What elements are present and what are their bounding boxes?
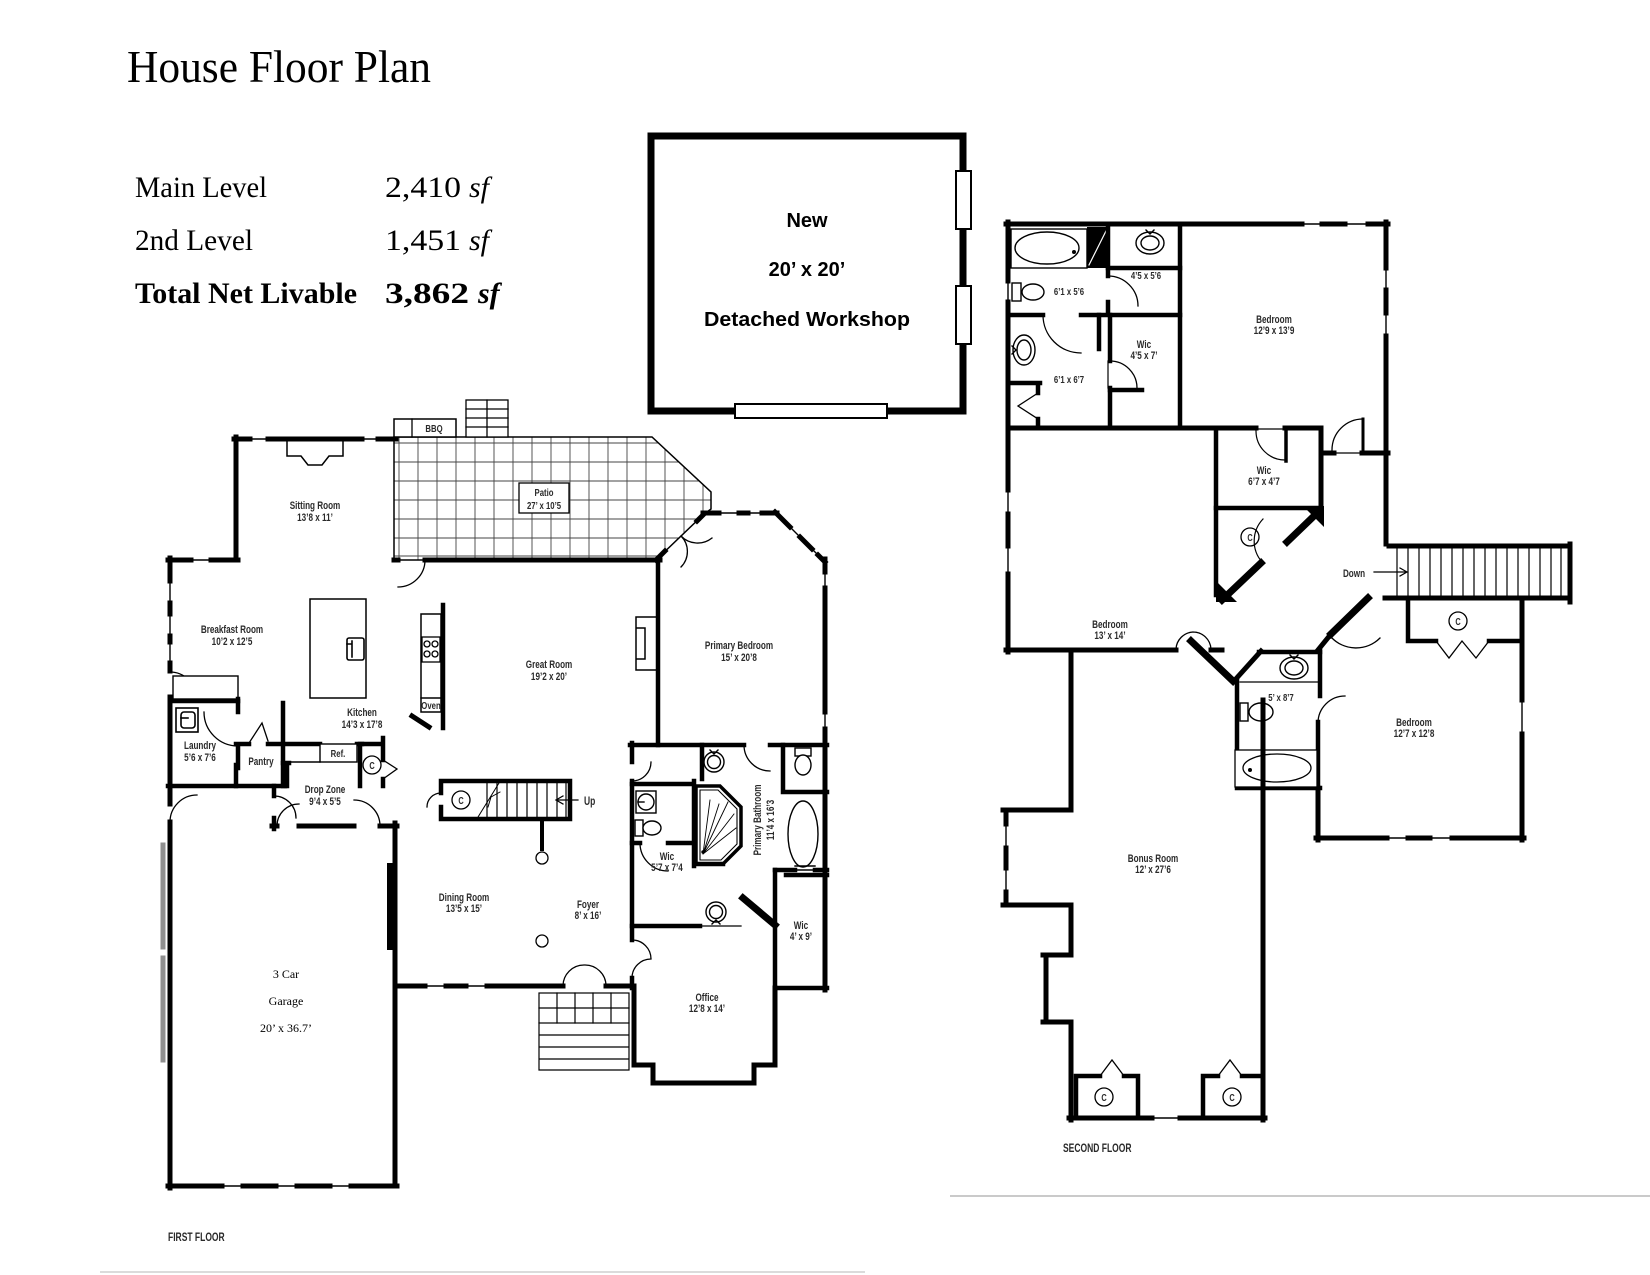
svg-text:15’ x 20’8: 15’ x 20’8 bbox=[721, 652, 757, 665]
svg-text:Oven: Oven bbox=[421, 700, 441, 711]
svg-text:Laundry: Laundry bbox=[184, 740, 217, 753]
svg-text:2nd Level: 2nd Level bbox=[135, 224, 253, 257]
svg-text:4’ x 9’: 4’ x 9’ bbox=[790, 931, 812, 944]
svg-text:Garage: Garage bbox=[269, 994, 304, 1008]
svg-text:5’ x 8’7: 5’ x 8’7 bbox=[1268, 692, 1293, 703]
svg-text:Ref.: Ref. bbox=[331, 748, 346, 759]
svg-text:C: C bbox=[1229, 1092, 1235, 1103]
svg-text:BBQ: BBQ bbox=[425, 423, 442, 434]
svg-text:Pantry: Pantry bbox=[248, 756, 274, 769]
svg-text:Detached Workshop: Detached Workshop bbox=[704, 309, 910, 331]
svg-text:12’9 x 13’9: 12’9 x 13’9 bbox=[1254, 325, 1295, 338]
svg-text:11’4 x 16’3: 11’4 x 16’3 bbox=[765, 799, 778, 840]
svg-text:20’ x 36.7’: 20’ x 36.7’ bbox=[260, 1021, 312, 1035]
svg-text:Primary Bathroom: Primary Bathroom bbox=[752, 785, 765, 856]
svg-text:FIRST FLOOR: FIRST FLOOR bbox=[168, 1232, 225, 1245]
svg-text:SECOND FLOOR: SECOND FLOOR bbox=[1063, 1143, 1132, 1156]
svg-text:3,862: 3,862 bbox=[385, 277, 469, 310]
svg-text:5’7 x 7’4: 5’7 x 7’4 bbox=[651, 862, 683, 875]
svg-text:12’7 x 12’8: 12’7 x 12’8 bbox=[1394, 728, 1435, 741]
svg-text:Down: Down bbox=[1343, 568, 1365, 581]
svg-text:2,410: 2,410 bbox=[385, 171, 461, 204]
svg-text:C: C bbox=[1247, 532, 1253, 543]
svg-text:9’4 x 5’5: 9’4 x 5’5 bbox=[309, 796, 341, 809]
svg-text:sf: sf bbox=[477, 277, 503, 310]
svg-text:Up: Up bbox=[584, 796, 595, 809]
svg-text:Breakfast Room: Breakfast Room bbox=[201, 624, 263, 637]
svg-text:12’8 x 14’: 12’8 x 14’ bbox=[689, 1003, 725, 1016]
svg-text:Primary Bedroom: Primary Bedroom bbox=[705, 640, 773, 653]
svg-text:14’3 x 17’8: 14’3 x 17’8 bbox=[342, 719, 383, 732]
svg-text:C: C bbox=[1455, 616, 1461, 627]
svg-text:19’2 x 20’: 19’2 x 20’ bbox=[531, 671, 567, 684]
svg-text:3 Car: 3 Car bbox=[273, 967, 299, 981]
svg-text:1,451: 1,451 bbox=[385, 224, 461, 257]
svg-text:4’5 x 7’: 4’5 x 7’ bbox=[1130, 350, 1157, 363]
svg-text:Total Net Livable: Total Net Livable bbox=[135, 277, 357, 310]
svg-text:8’ x 16’: 8’ x 16’ bbox=[575, 910, 602, 923]
svg-text:C: C bbox=[369, 760, 375, 771]
svg-text:Sitting Room: Sitting Room bbox=[290, 500, 341, 513]
svg-text:13’ x 14’: 13’ x 14’ bbox=[1094, 630, 1125, 643]
svg-text:20’ x 20’: 20’ x 20’ bbox=[769, 259, 846, 281]
svg-text:New: New bbox=[786, 210, 828, 232]
svg-text:Kitchen: Kitchen bbox=[347, 707, 377, 720]
svg-text:Drop Zone: Drop Zone bbox=[305, 784, 346, 797]
svg-text:Patio: Patio bbox=[535, 487, 554, 498]
svg-text:Great Room: Great Room bbox=[526, 659, 572, 672]
svg-text:6’1 x 5’6: 6’1 x 5’6 bbox=[1054, 286, 1084, 297]
svg-text:6’1 x 6’7: 6’1 x 6’7 bbox=[1054, 374, 1084, 385]
svg-text:6’7 x 4’7: 6’7 x 4’7 bbox=[1248, 476, 1280, 489]
svg-text:13’5 x 15’: 13’5 x 15’ bbox=[446, 903, 482, 916]
svg-text:House Floor Plan: House Floor Plan bbox=[127, 41, 431, 92]
svg-text:Main Level: Main Level bbox=[135, 171, 267, 204]
svg-text:5’6 x 7’6: 5’6 x 7’6 bbox=[184, 752, 216, 765]
svg-text:C: C bbox=[1101, 1092, 1107, 1103]
svg-text:C: C bbox=[458, 795, 464, 806]
svg-text:13’8 x 11’: 13’8 x 11’ bbox=[297, 512, 333, 525]
svg-text:4’5 x 5’6: 4’5 x 5’6 bbox=[1131, 270, 1161, 281]
svg-text:27’ x 10’5: 27’ x 10’5 bbox=[527, 500, 561, 511]
svg-text:12’ x 27’6: 12’ x 27’6 bbox=[1135, 864, 1171, 877]
svg-text:10’2 x 12’5: 10’2 x 12’5 bbox=[212, 636, 253, 649]
